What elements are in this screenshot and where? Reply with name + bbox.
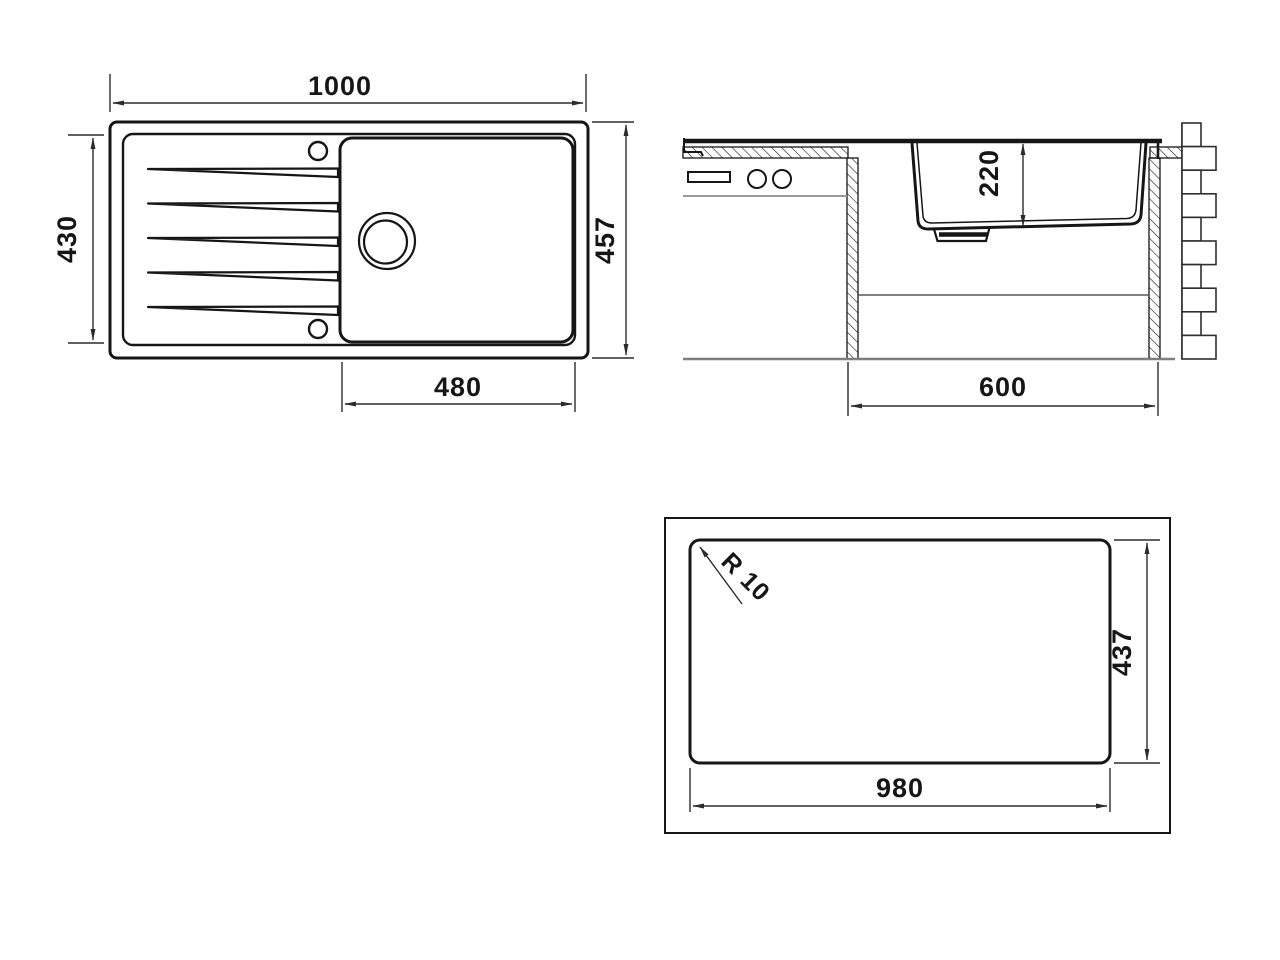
dim-text-drainer-length: 430 xyxy=(52,215,82,263)
drawer-handle xyxy=(688,172,730,182)
sink-bowl-outline xyxy=(340,138,573,342)
top-view-dimensions xyxy=(68,74,634,412)
dim-text-overall-depth: 457 xyxy=(590,216,620,264)
groove xyxy=(148,272,338,281)
drawing-svg: 1000 430 457 480 xyxy=(0,0,1280,960)
brick-wall xyxy=(1182,123,1216,359)
knob-left xyxy=(748,170,766,188)
dim-text-overall-width: 1000 xyxy=(308,71,372,101)
bowl-inner-wall xyxy=(917,143,1141,223)
bowl-outer-wall xyxy=(912,143,1146,229)
dim-text-corner-radius: R 10 xyxy=(716,547,776,607)
dim-text-cutout-depth: 437 xyxy=(1107,628,1137,676)
drain-inner xyxy=(364,221,407,264)
cabinet-front xyxy=(688,170,791,188)
cross-section-view xyxy=(683,123,1216,359)
drainboard-grooves xyxy=(148,169,338,316)
dim-text-bowl-depth: 220 xyxy=(974,149,1004,197)
groove xyxy=(148,238,338,247)
bowl-section xyxy=(912,143,1146,241)
tap-hole-bottom xyxy=(309,320,327,338)
countertop-section xyxy=(683,147,1183,158)
knob-right xyxy=(773,170,791,188)
groove xyxy=(148,169,338,178)
dim-text-bowl-width: 480 xyxy=(434,372,482,402)
tap-hole-top xyxy=(309,142,327,160)
top-view xyxy=(110,122,588,358)
dim-text-cabinet-width: 600 xyxy=(979,372,1027,402)
technical-drawing-page: 1000 430 457 480 xyxy=(0,0,1280,960)
groove xyxy=(148,203,338,212)
groove xyxy=(148,307,338,316)
dim-text-cutout-width: 980 xyxy=(876,773,924,803)
